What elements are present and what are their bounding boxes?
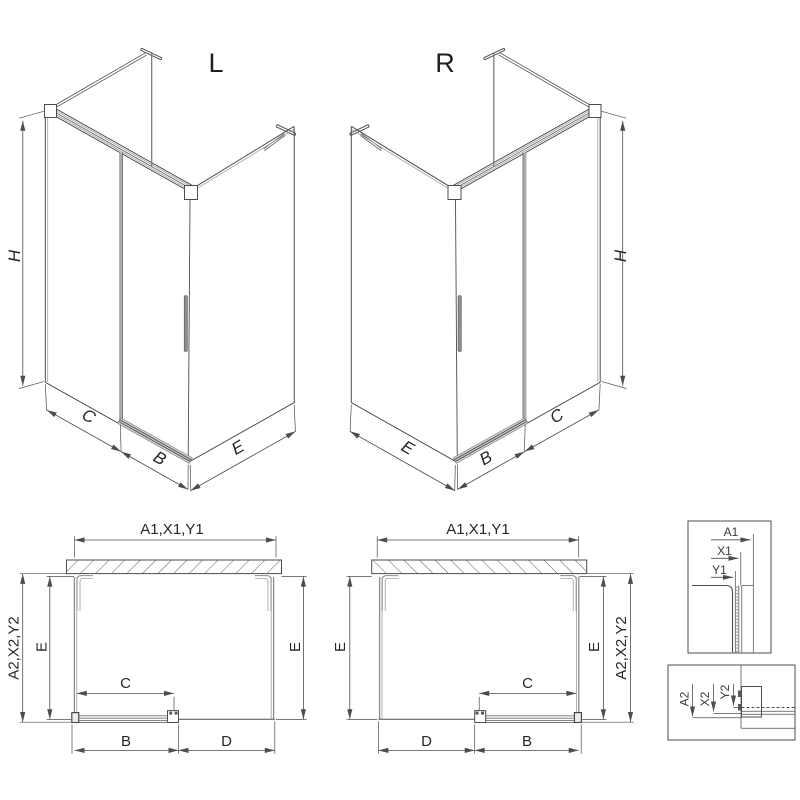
plan-right-depth-right-label: E [586,642,603,652]
plan-left-c-label: C [120,675,131,692]
plan-left-depth-right-label: E [287,642,304,652]
dim-label-e-right: E [398,437,418,459]
plan-right-d-label: D [421,733,432,750]
dim-label-b-right: B [476,447,495,469]
detail-top-a1-label: A1 [724,525,739,539]
variant-label-left: L [208,48,223,78]
plan-left-depth-total-label: A2,X2,Y2 [6,616,23,679]
corner-block-front [185,186,198,200]
plan-right-depth-left-label: E [332,642,349,652]
wall-hatched [67,560,282,574]
plan-left-width-label: A1,X1,Y1 [140,521,203,538]
variant-label-right: R [435,48,455,78]
plan-right-b-label: B [522,733,532,750]
dim-c-b [45,384,188,490]
plan-left-d-label: D [221,733,232,750]
drawing-sheet: L H C B E R H C B E A1,X1,Y1 A2,X2,Y2 E … [0,0,800,800]
plan-right-c-label: C [522,675,533,692]
detail-bottom-x2-label: X2 [698,691,712,706]
detail-bottom-y2-label: Y2 [718,684,732,699]
detail-top-box [688,521,771,653]
dim-label-e-left: E [228,436,248,458]
plan-left-geometry [20,536,307,753]
plan-right-width-label: A1,X1,Y1 [446,521,509,538]
plan-left-depth-left-label: E [34,642,51,652]
rail-profile-section [742,687,762,718]
dim-label-h-left: H [5,249,24,262]
technical-drawing-canvas: L H C B E R H C B E A1,X1,Y1 A2,X2,Y2 E … [0,0,800,800]
wall-support-arm-top [55,48,162,166]
iso-right-geometry [350,48,627,491]
detail-bottom-a2-label: A2 [678,691,692,706]
wall-profile-left [77,576,93,611]
plan-left-b-label: B [121,733,131,750]
dim-label-c-right: C [547,405,568,428]
detail-top-x1-label: X1 [717,544,732,558]
dim-label-c-left: C [79,405,100,428]
dim-label-b-left: B [150,447,169,469]
door-handle [184,296,187,352]
corner-block-back [45,105,57,118]
iso-left-geometry [19,48,296,491]
detail-top-y1-label: Y1 [712,563,727,577]
return-panel [188,126,294,462]
plan-right-depth-total-label: A2,X2,Y2 [613,616,630,679]
wall-profile-right [255,576,271,611]
plan-bottom-track [72,711,275,723]
dim-label-h-right: H [611,249,630,262]
